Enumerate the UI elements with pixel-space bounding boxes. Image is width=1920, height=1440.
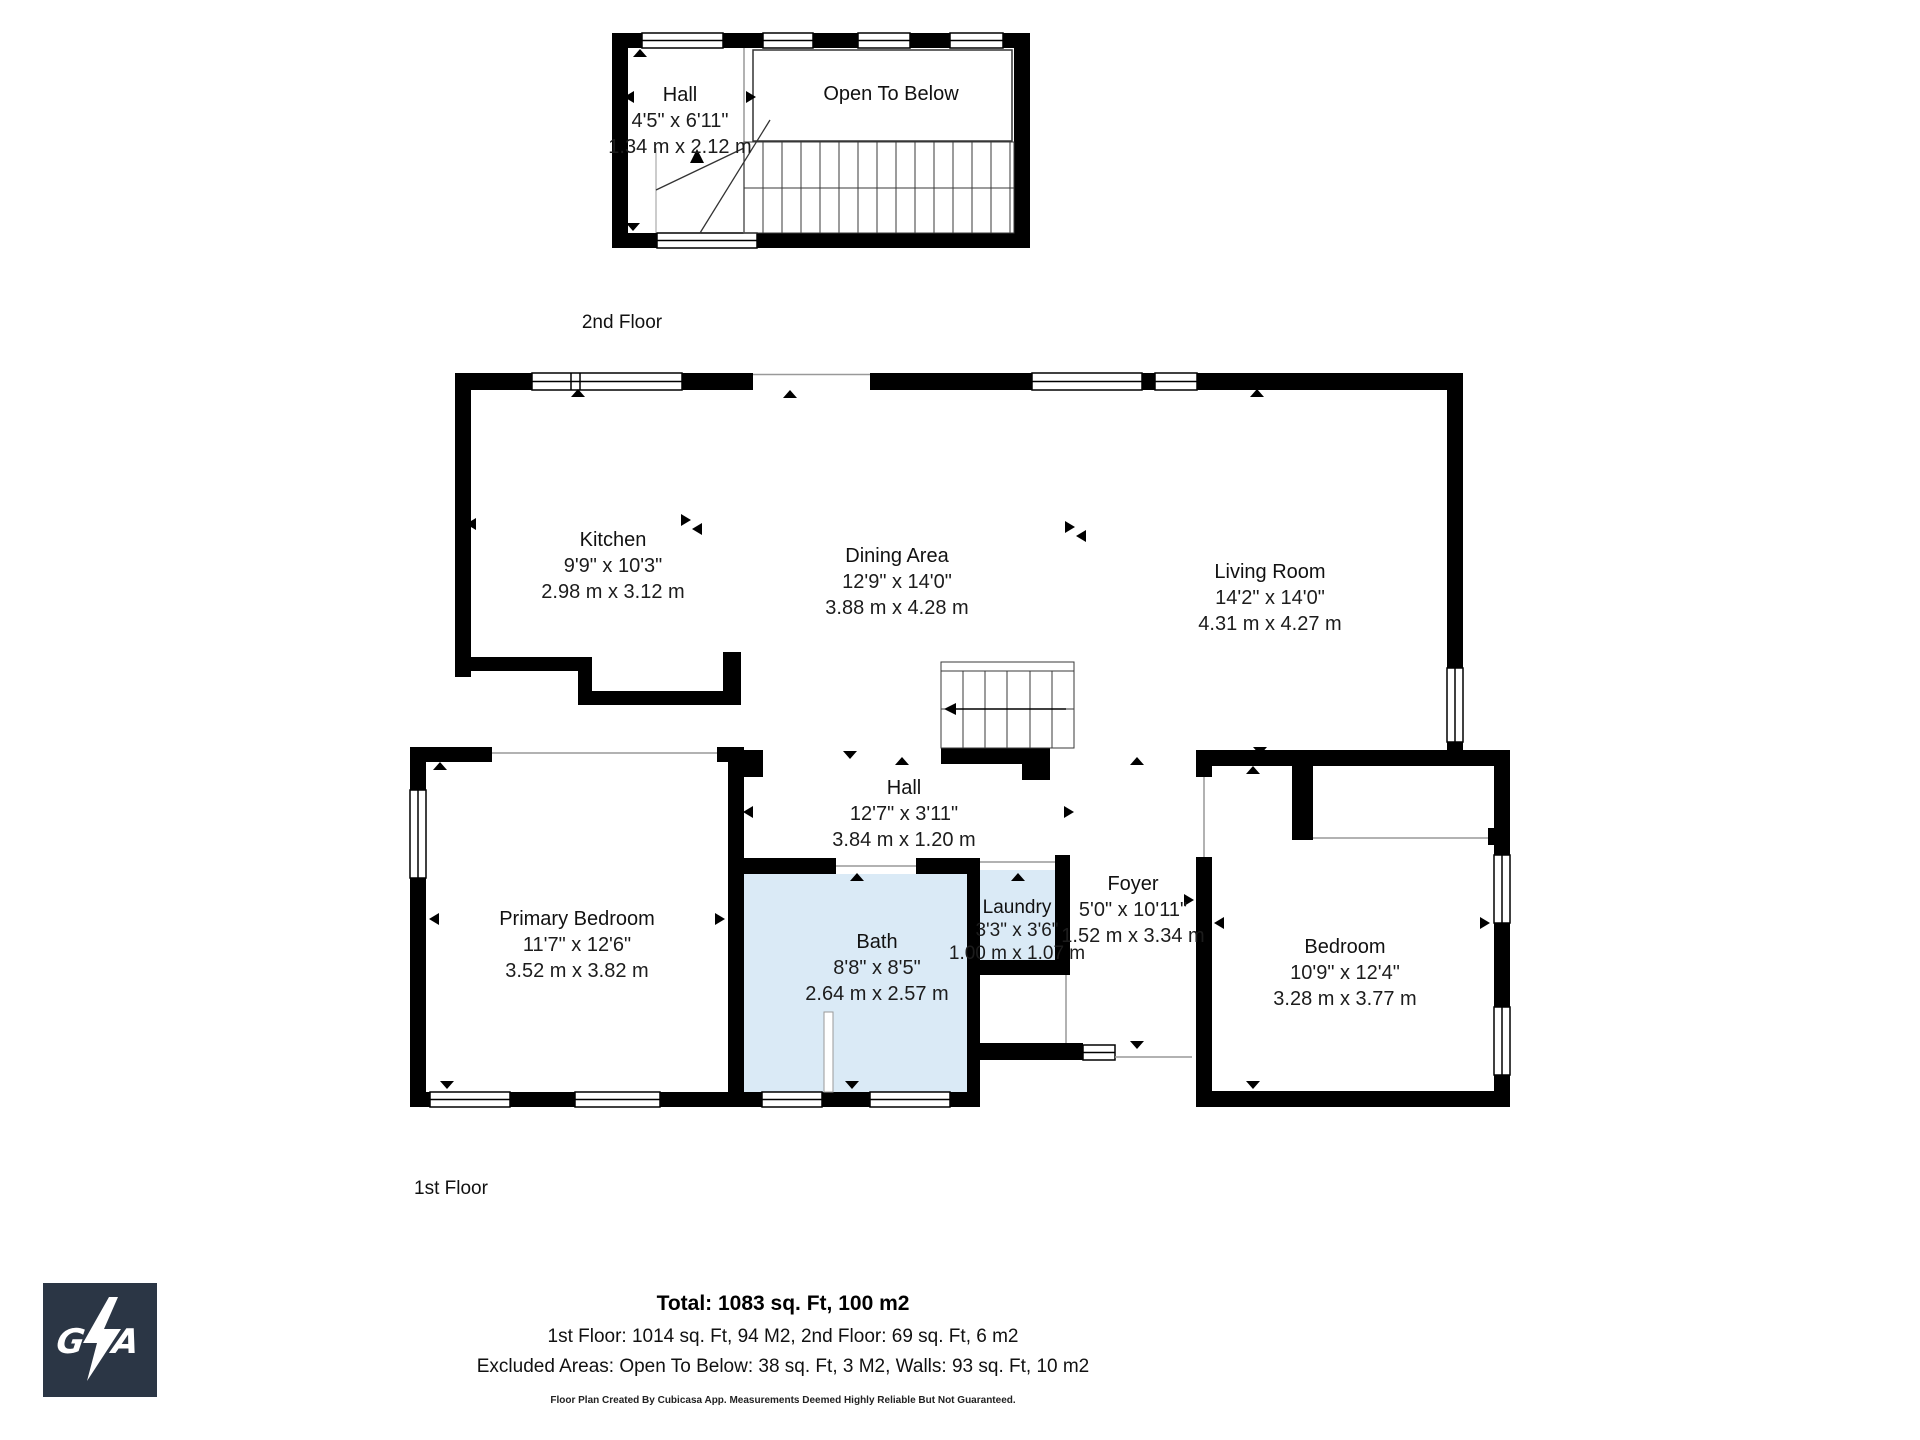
first-floor-bath-divider xyxy=(824,1012,833,1092)
room-label-bath: Bath 8'8" x 8'5" 2.64 m x 2.57 m xyxy=(805,929,948,1007)
first-floor-stairs xyxy=(941,662,1074,748)
room-label-bedroom: Bedroom 10'9" x 12'4" 3.28 m x 3.77 m xyxy=(1273,934,1416,1012)
floor-plan-drawing xyxy=(0,0,1920,1440)
room-label-foyer: Foyer 5'0" x 10'11" 1.52 m x 3.34 m xyxy=(1061,871,1204,949)
floor-plan-page: Hall 4'5" x 6'11" 1.34 m x 2.12 m Open T… xyxy=(0,0,1920,1440)
room-label-hall-2f: Hall 4'5" x 6'11" 1.34 m x 2.12 m xyxy=(608,82,751,160)
summary-floors: 1st Floor: 1014 sq. Ft, 94 M2, 2nd Floor… xyxy=(548,1326,1019,1348)
svg-text:G: G xyxy=(54,1322,88,1362)
summary-excluded: Excluded Areas: Open To Below: 38 sq. Ft… xyxy=(477,1356,1090,1378)
summary-disclaimer: Floor Plan Created By Cubicasa App. Meas… xyxy=(550,1395,1015,1406)
room-label-kitchen: Kitchen 9'9" x 10'3" 2.98 m x 3.12 m xyxy=(541,527,684,605)
room-label-living-room: Living Room 14'2" x 14'0" 4.31 m x 4.27 … xyxy=(1198,559,1341,637)
gza-logo: G A xyxy=(43,1283,157,1397)
summary-total: Total: 1083 sq. Ft, 100 m2 xyxy=(657,1292,910,1316)
second-floor-label: 2nd Floor xyxy=(582,312,662,334)
room-label-hall-1f: Hall 12'7" x 3'11" 3.84 m x 1.20 m xyxy=(832,775,975,853)
first-floor-label: 1st Floor xyxy=(414,1178,488,1200)
room-label-dining-area: Dining Area 12'9" x 14'0" 3.88 m x 4.28 … xyxy=(825,543,968,621)
gza-logo-graphic: G A xyxy=(43,1283,157,1397)
room-label-open-to-below: Open To Below xyxy=(823,81,958,107)
room-label-primary-bedroom: Primary Bedroom 11'7" x 12'6" 3.52 m x 3… xyxy=(499,906,655,984)
